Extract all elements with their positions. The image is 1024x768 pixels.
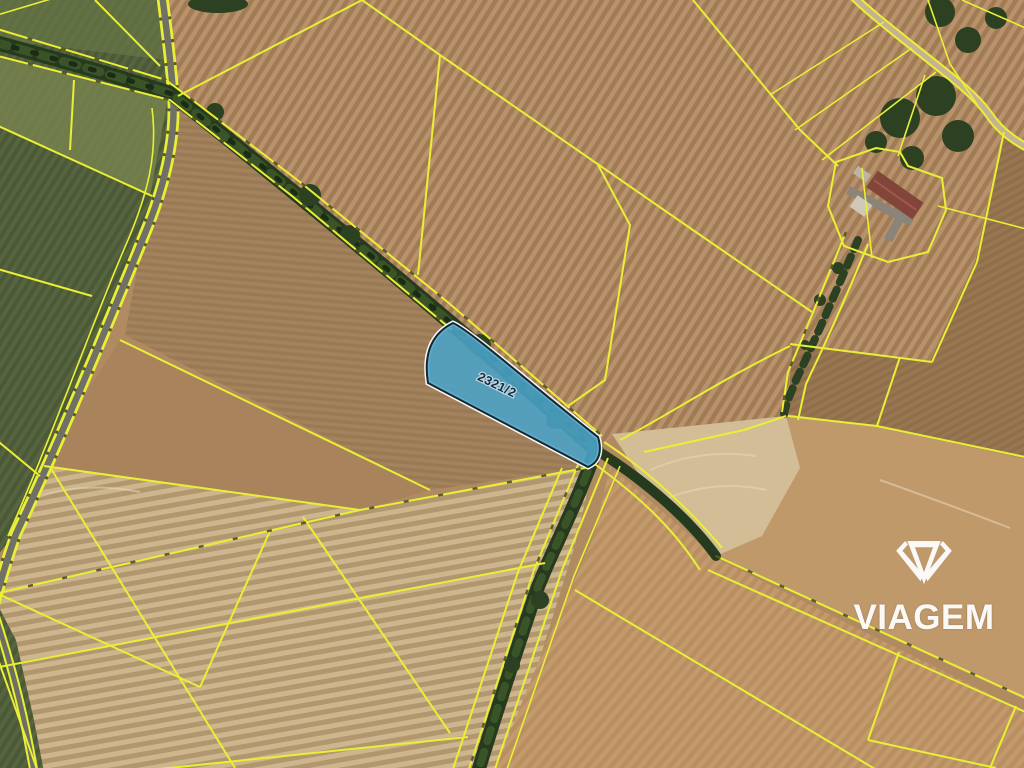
map-screenshot: 2321/2 VIAGEM (0, 0, 1024, 768)
satellite-map: 2321/2 (0, 0, 1024, 768)
